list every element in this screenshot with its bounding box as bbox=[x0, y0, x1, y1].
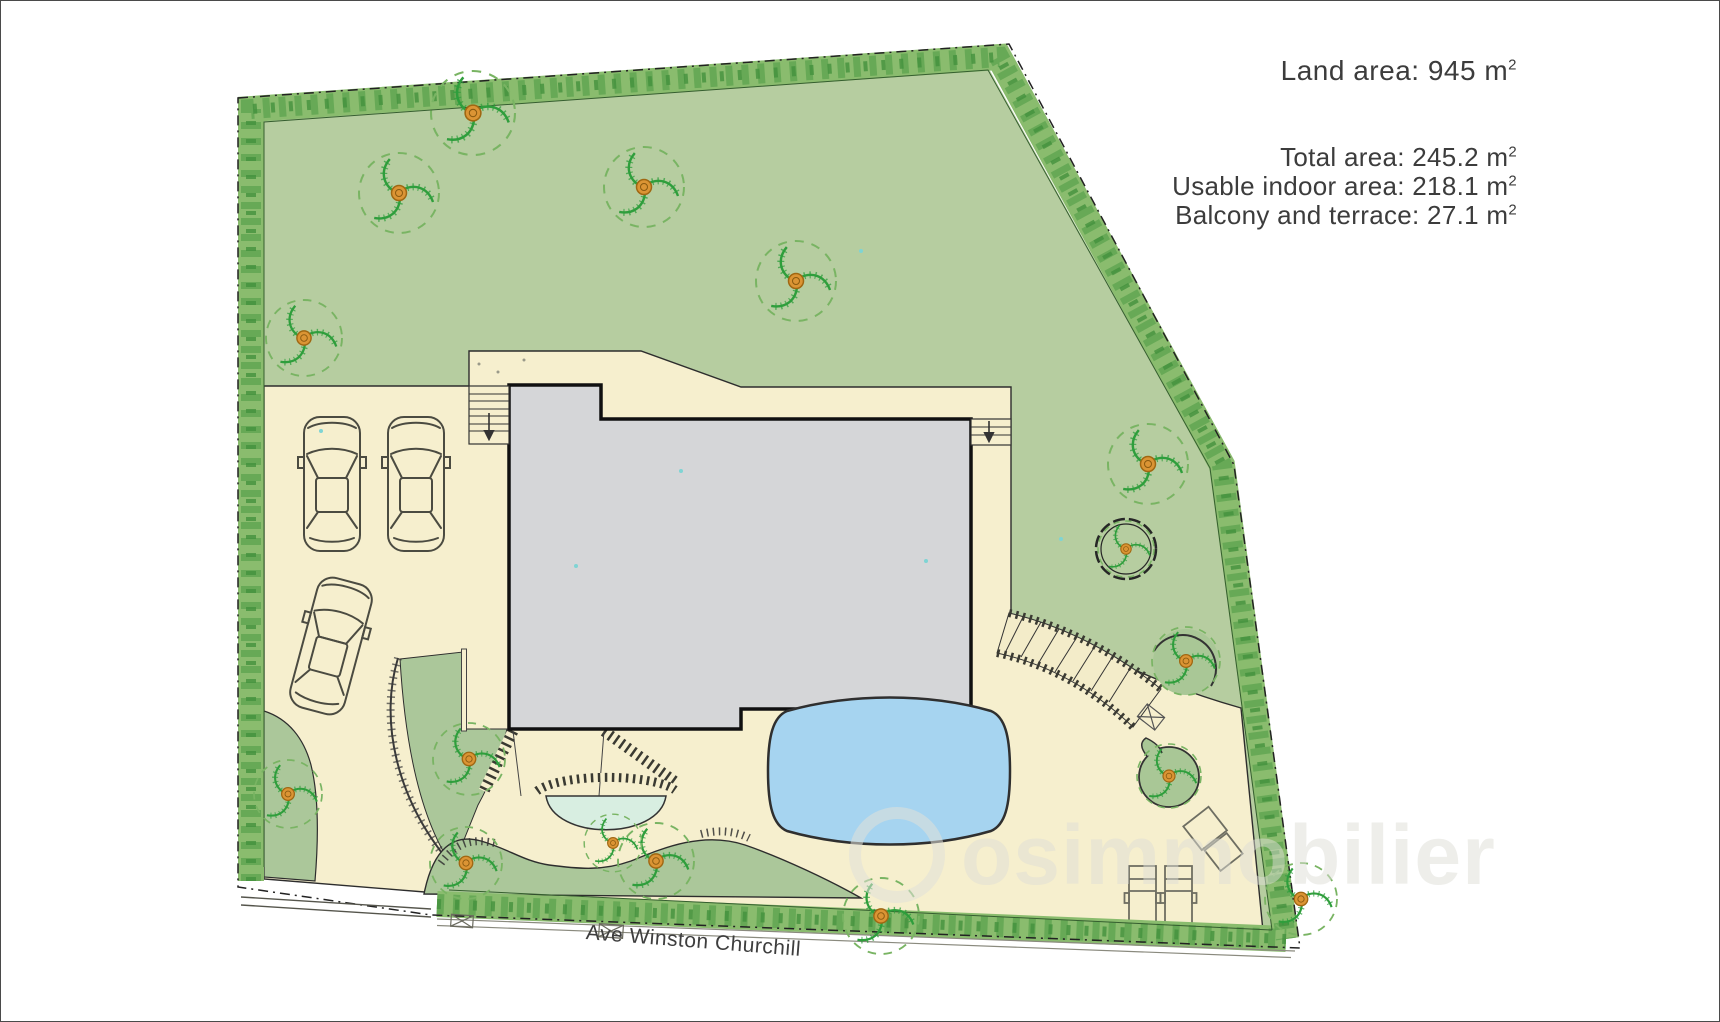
usable-indoor-area-text: Usable indoor area: 218.1 m2 bbox=[1172, 172, 1517, 201]
site-plan-page: Land area: 945 m2 Total area: 245.2 m2 U… bbox=[0, 0, 1720, 1022]
sun-lounger bbox=[1125, 866, 1161, 924]
area-statistics: Land area: 945 m2 Total area: 245.2 m2 U… bbox=[1172, 55, 1517, 230]
garden-wall-stub bbox=[462, 649, 467, 731]
total-area-text: Total area: 245.2 m2 bbox=[1172, 143, 1517, 172]
entrance-gate bbox=[241, 897, 431, 917]
sun-lounger bbox=[1161, 866, 1197, 924]
swimming-pool bbox=[768, 698, 1010, 845]
stairs-left bbox=[469, 386, 509, 444]
balcony-terrace-area-text: Balcony and terrace: 27.1 m2 bbox=[1172, 201, 1517, 230]
building-footprint bbox=[509, 385, 971, 729]
land-area-text: Land area: 945 m2 bbox=[1172, 55, 1517, 87]
stairs-right bbox=[971, 419, 1011, 445]
